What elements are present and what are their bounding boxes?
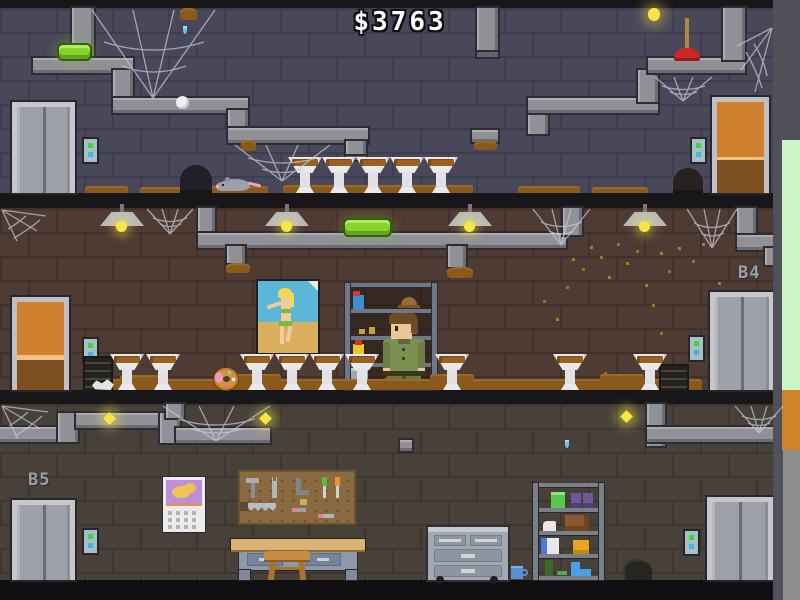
cobweb (687, 209, 737, 248)
cobweb (737, 28, 772, 92)
cobweb (655, 77, 712, 101)
cobweb (533, 209, 590, 245)
cobweb (163, 406, 270, 441)
money-display: $3763 (0, 7, 800, 37)
cobweb (735, 406, 783, 433)
cobweb (2, 406, 48, 439)
cobwebs-layer (0, 0, 800, 600)
game-screen: B4 (0, 0, 800, 600)
cobweb (235, 145, 330, 181)
cobweb (2, 210, 46, 241)
cobweb (147, 209, 193, 234)
